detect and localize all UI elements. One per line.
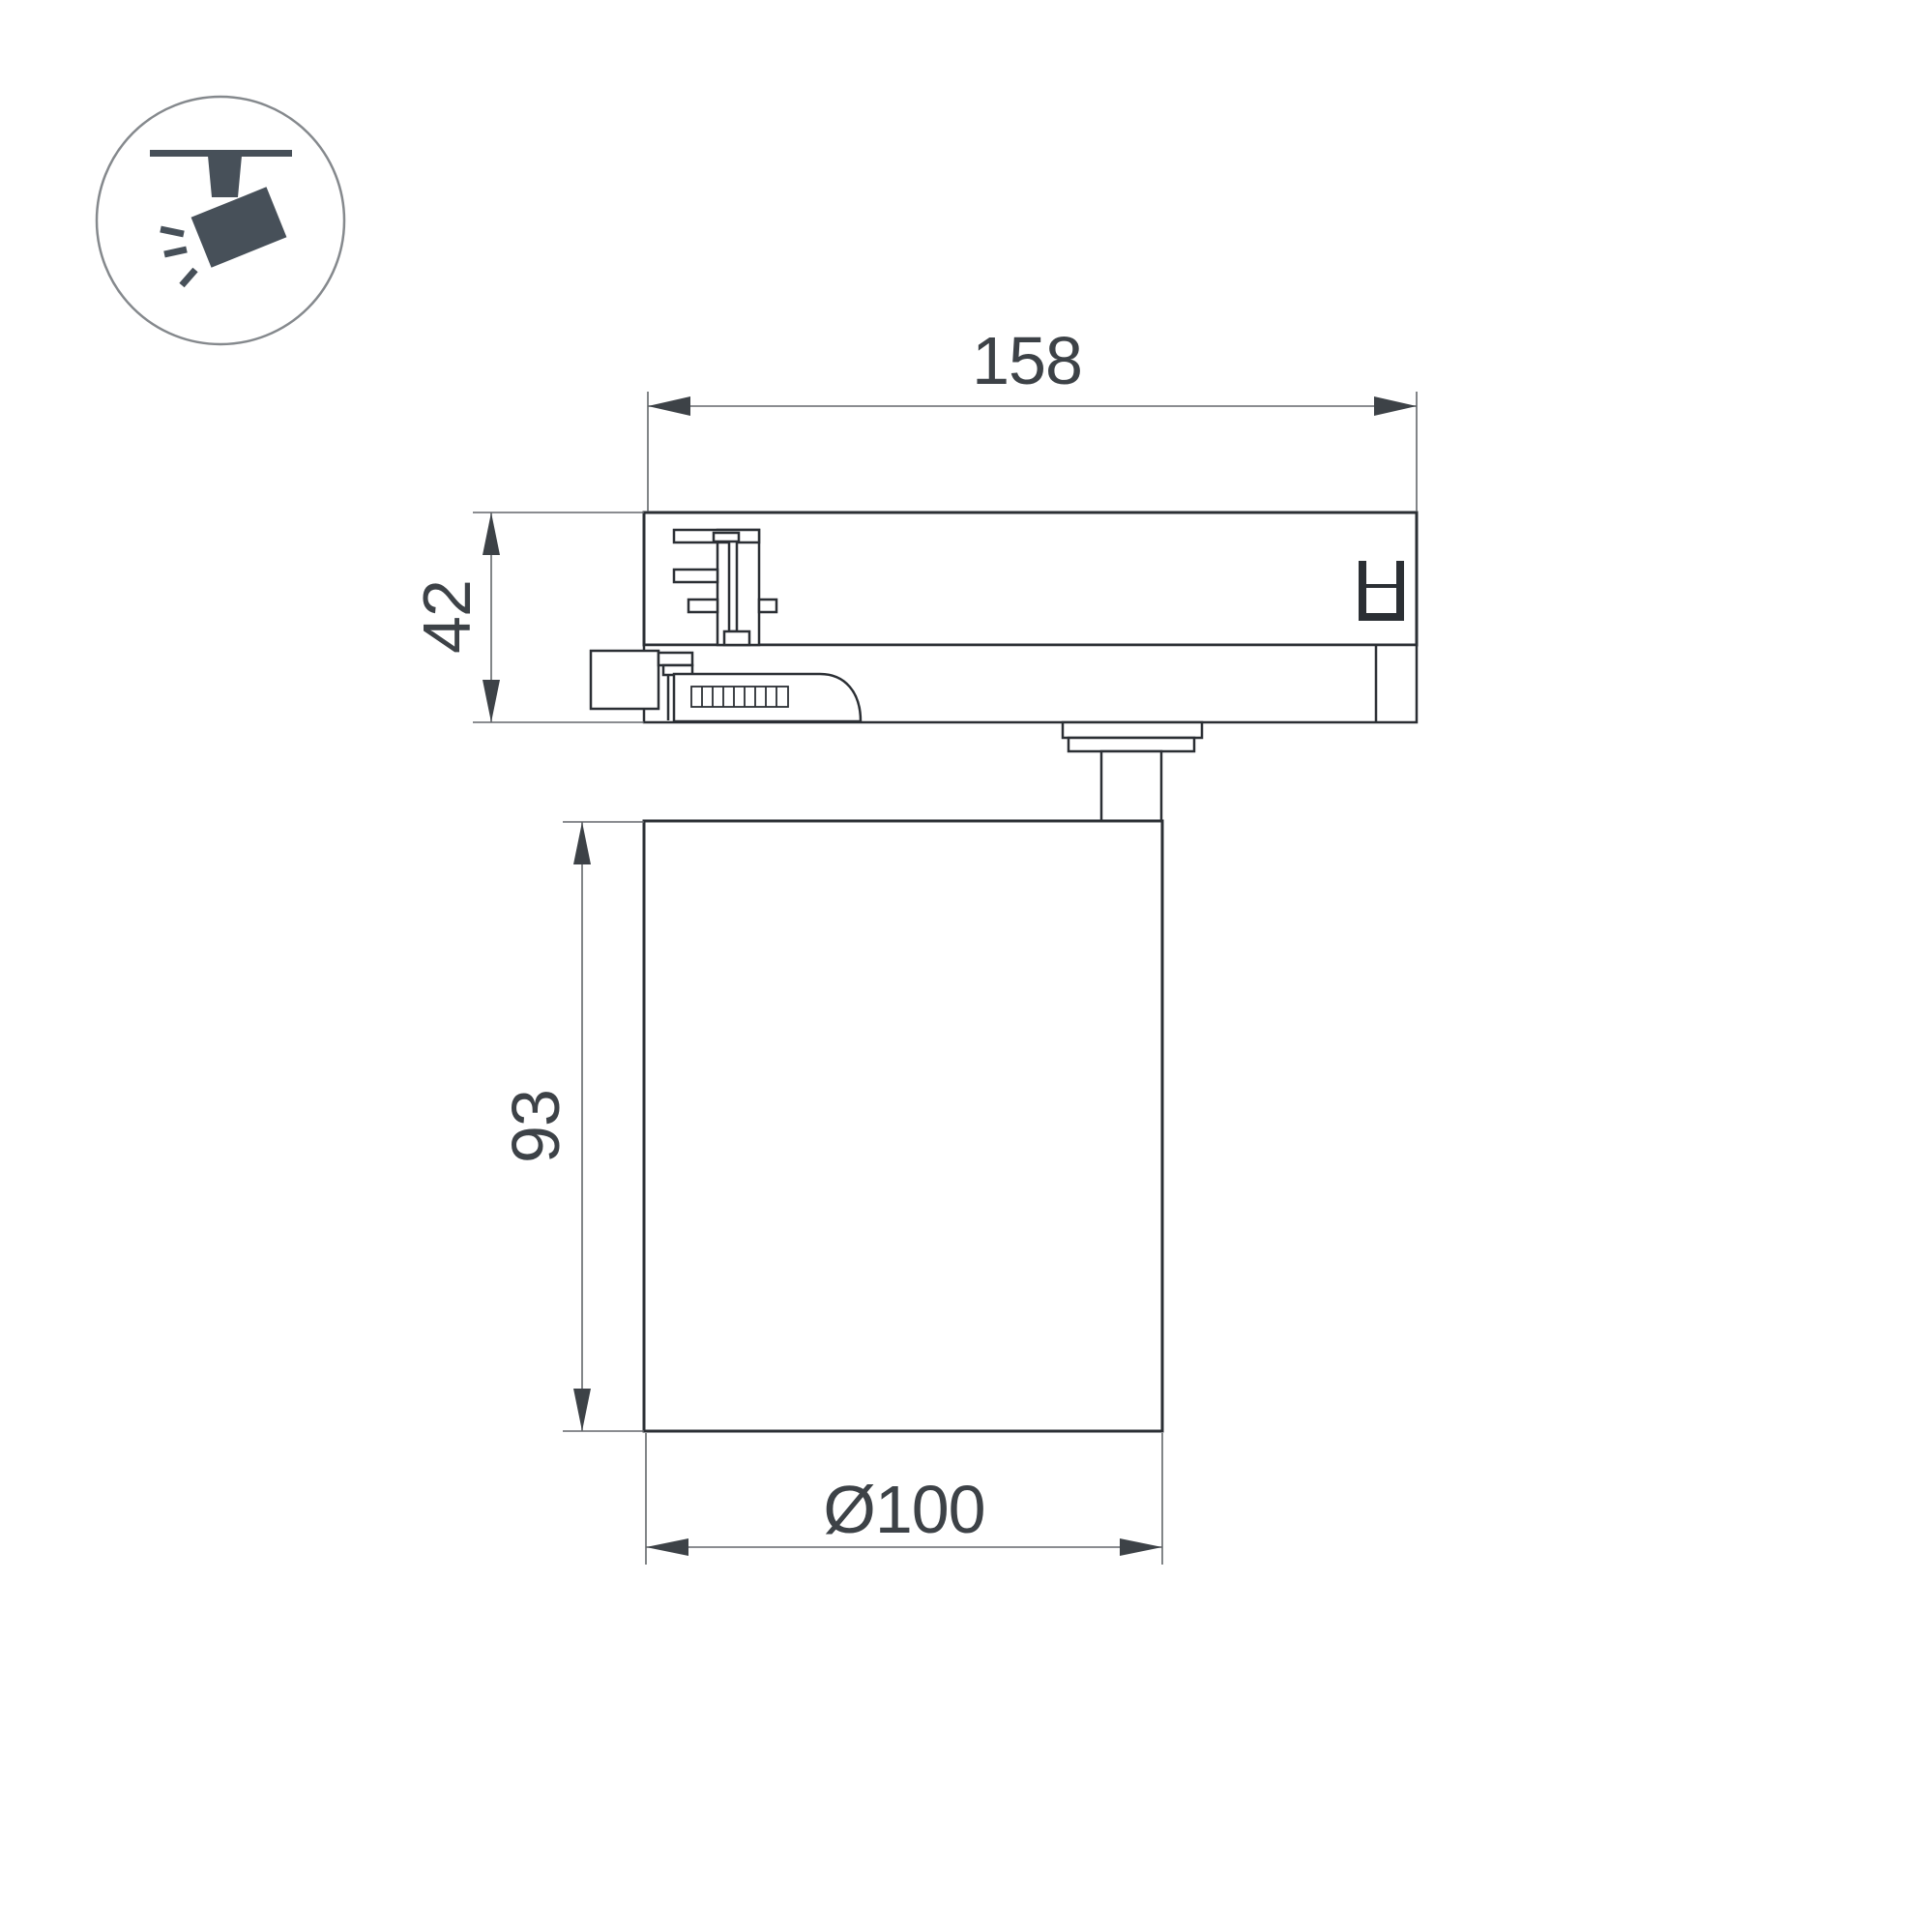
dim-label-93: 93 <box>498 1090 573 1163</box>
swivel-mount <box>1063 722 1202 821</box>
fixture-outline <box>591 512 1417 1431</box>
vent-grille <box>691 687 788 707</box>
arrow-left <box>646 1538 688 1556</box>
dimension-width-158: 158 <box>648 323 1417 512</box>
dim-label-42: 42 <box>409 580 484 654</box>
dim-label-158: 158 <box>972 323 1082 398</box>
technical-drawing-page: 158 42 93 Ø100 <box>0 0 1932 1932</box>
icon-mount-stem <box>208 156 242 197</box>
dim-label-diameter: Ø100 <box>823 1472 984 1547</box>
dimension-height-93: 93 <box>498 822 644 1431</box>
swivel-stem <box>1101 751 1161 821</box>
arrow-right <box>1374 396 1417 416</box>
lamp-body-cylinder <box>644 821 1162 1431</box>
contact-pin-foot <box>724 631 749 645</box>
contact-column <box>717 530 759 645</box>
contact-prong-mid <box>674 570 717 582</box>
arrow-left <box>648 396 690 416</box>
swivel-step-1 <box>1063 722 1202 738</box>
track-spotlight-icon <box>97 97 344 344</box>
arrow-down <box>483 680 500 722</box>
contact-pin <box>729 541 737 631</box>
icon-track-bar <box>150 150 292 157</box>
contact-prong-low <box>688 600 717 612</box>
arrow-right <box>1120 1538 1162 1556</box>
arrow-up <box>573 822 591 864</box>
contact-pin-cap <box>714 533 739 542</box>
swivel-step-2 <box>1068 738 1194 751</box>
dimension-diameter-100: Ø100 <box>646 1433 1162 1565</box>
contact-right-prong <box>759 600 776 612</box>
arrow-down <box>573 1389 591 1431</box>
latch-step-a <box>659 653 692 665</box>
arrow-up <box>483 512 500 555</box>
latch-knob <box>591 651 659 709</box>
dimension-drawing-svg: 158 42 93 Ø100 <box>0 0 1932 1932</box>
